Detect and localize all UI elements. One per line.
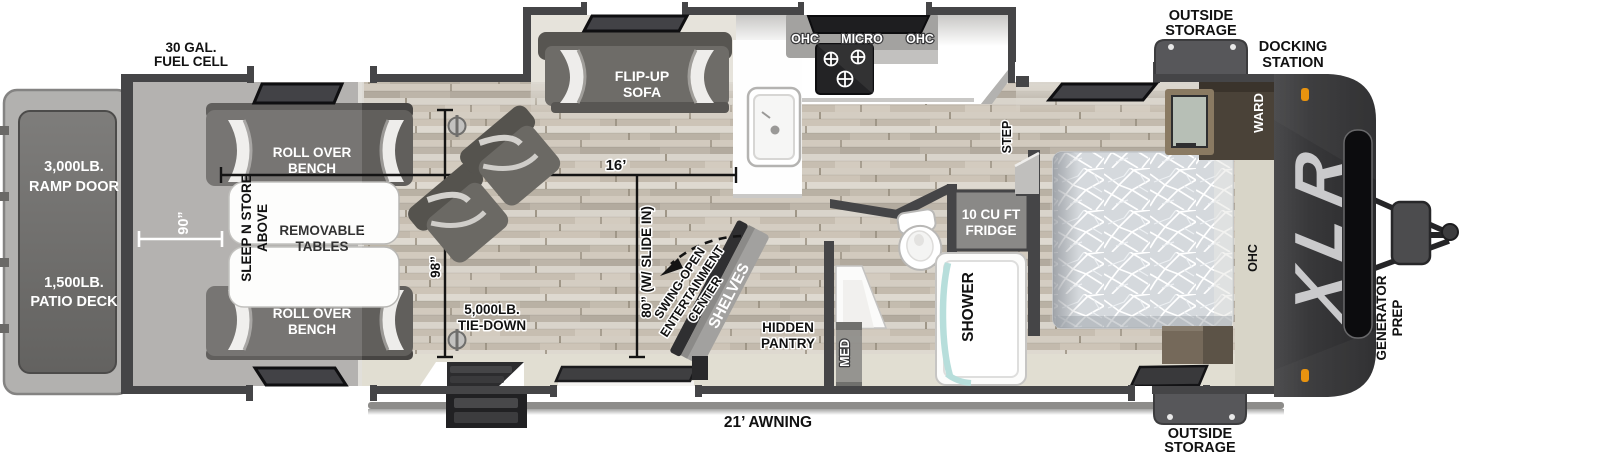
svg-text:80” (W/ SLIDE IN): 80” (W/ SLIDE IN)	[639, 206, 654, 318]
svg-text:FRIDGE: FRIDGE	[965, 223, 1016, 238]
svg-text:OHC: OHC	[906, 32, 934, 46]
svg-text:OHC: OHC	[791, 32, 819, 46]
svg-text:30 GAL.: 30 GAL.	[165, 40, 216, 55]
svg-text:HIDDEN: HIDDEN	[762, 320, 814, 335]
svg-text:PREP: PREP	[1390, 300, 1405, 337]
svg-text:WARD: WARD	[1251, 93, 1266, 133]
svg-text:STATION: STATION	[1262, 55, 1323, 71]
svg-text:FUEL CELL: FUEL CELL	[154, 54, 228, 69]
svg-text:MICRO: MICRO	[841, 32, 883, 46]
svg-text:RAMP DOOR: RAMP DOOR	[29, 179, 119, 195]
svg-text:21’ AWNING: 21’ AWNING	[724, 414, 812, 431]
svg-text:STEP: STEP	[1000, 121, 1014, 154]
svg-text:STORAGE: STORAGE	[1164, 440, 1236, 454]
svg-text:DOCKING: DOCKING	[1259, 39, 1327, 55]
svg-text:3,000LB.: 3,000LB.	[44, 159, 104, 175]
svg-text:5,000LB.: 5,000LB.	[464, 302, 520, 317]
svg-text:MED: MED	[838, 339, 852, 367]
svg-text:SOFA: SOFA	[623, 84, 661, 100]
svg-text:1,500LB.: 1,500LB.	[44, 275, 104, 291]
svg-text:XLR: XLR	[1281, 133, 1357, 328]
svg-text:10 CU FT: 10 CU FT	[962, 207, 1021, 222]
svg-text:GENERATOR: GENERATOR	[1374, 275, 1389, 360]
svg-text:OUTSIDE: OUTSIDE	[1169, 8, 1234, 24]
svg-text:SHOWER: SHOWER	[960, 272, 977, 342]
svg-text:FLIP-UP: FLIP-UP	[615, 68, 669, 84]
svg-text:ABOVE: ABOVE	[255, 204, 270, 252]
svg-text:STORAGE: STORAGE	[1165, 23, 1237, 39]
svg-text:16’: 16’	[606, 157, 627, 174]
svg-text:TIE-DOWN: TIE-DOWN	[458, 318, 526, 333]
svg-text:90”: 90”	[176, 211, 192, 234]
svg-text:98”: 98”	[428, 256, 443, 278]
svg-text:PANTRY: PANTRY	[761, 336, 815, 351]
svg-text:PATIO DECK: PATIO DECK	[30, 294, 118, 310]
svg-text:OHC: OHC	[1246, 244, 1260, 272]
svg-text:SLEEP N STORE: SLEEP N STORE	[239, 174, 254, 282]
